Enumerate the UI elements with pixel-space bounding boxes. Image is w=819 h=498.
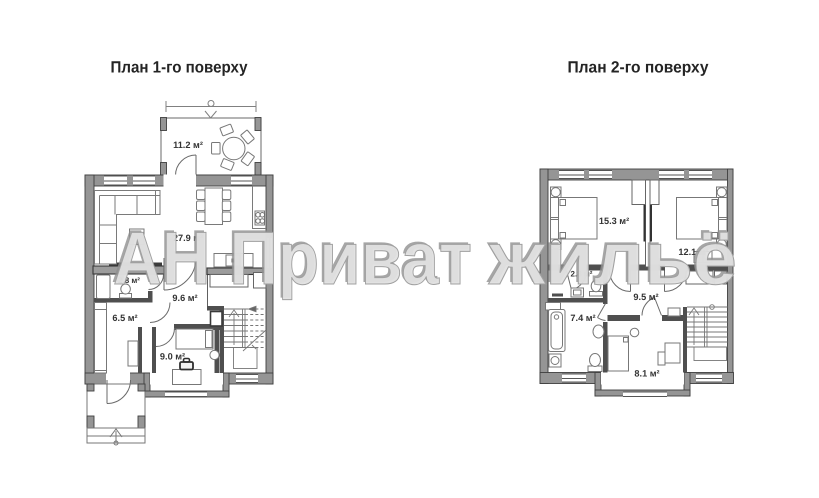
svg-text:АН Приват: АН Приват: [113, 216, 472, 300]
svg-text:7.4 м²: 7.4 м²: [570, 313, 595, 323]
svg-text:План 2-го поверху: План 2-го поверху: [568, 59, 709, 77]
svg-text:11.2 м²: 11.2 м²: [173, 140, 203, 150]
svg-text:План 1-го поверху: План 1-го поверху: [111, 59, 248, 77]
svg-text:жильё: жильё: [488, 216, 737, 300]
svg-text:9.0 м²: 9.0 м²: [160, 352, 185, 362]
svg-text:8.1 м²: 8.1 м²: [634, 369, 659, 379]
svg-text:6.5 м²: 6.5 м²: [112, 313, 137, 323]
